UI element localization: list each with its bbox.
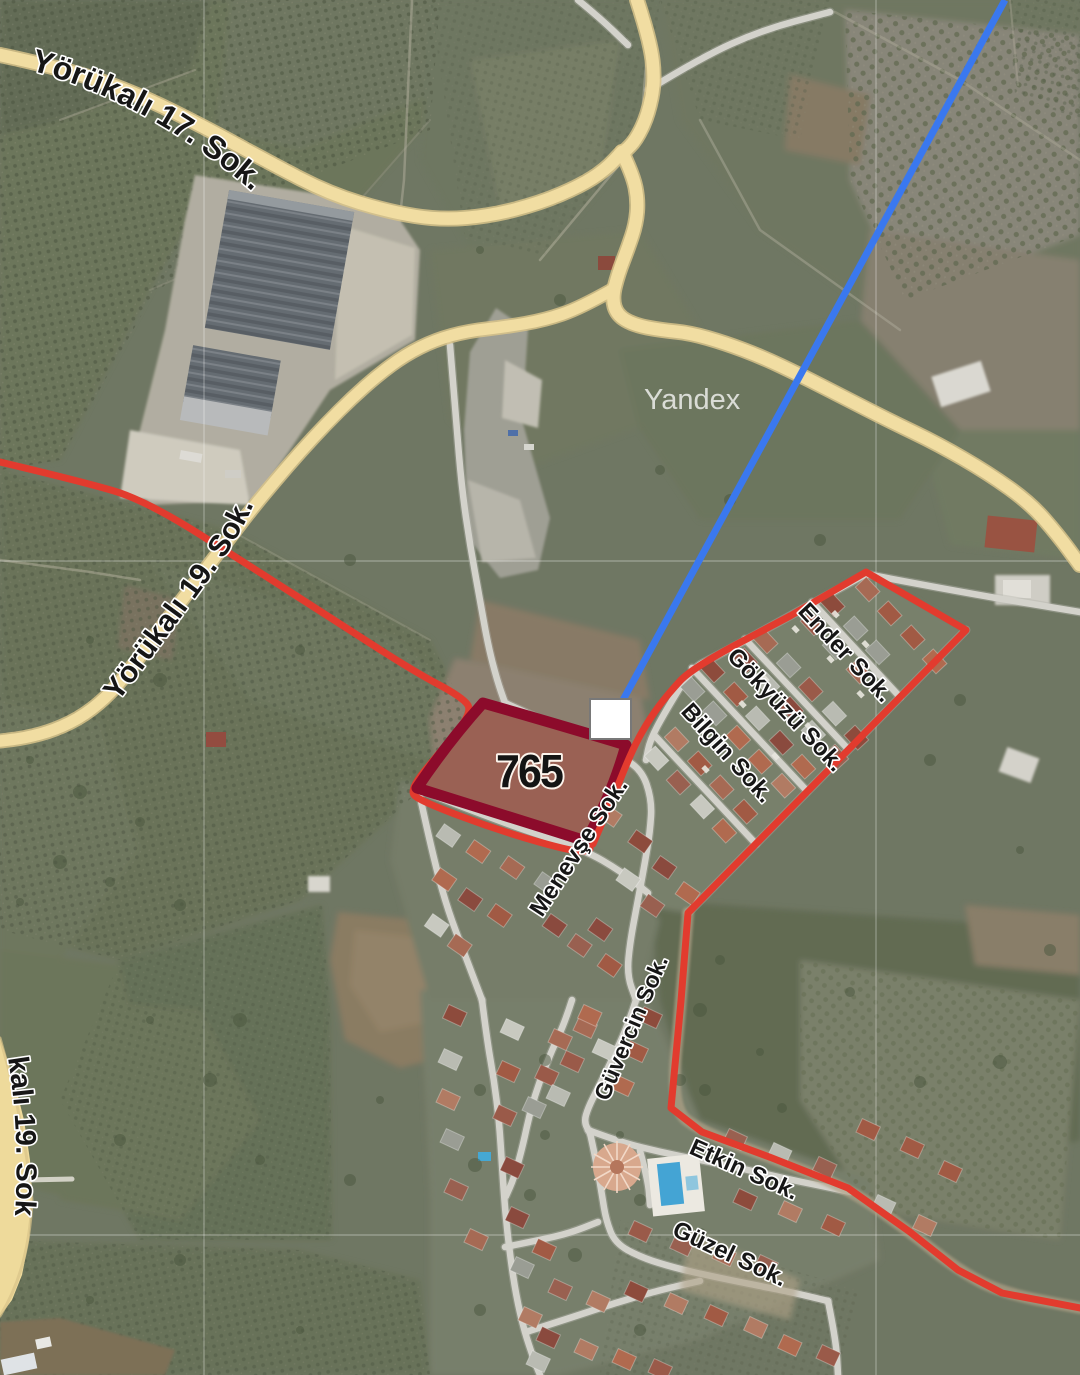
svg-text:765: 765 [496,745,563,797]
svg-text:Yandex: Yandex [644,384,741,416]
